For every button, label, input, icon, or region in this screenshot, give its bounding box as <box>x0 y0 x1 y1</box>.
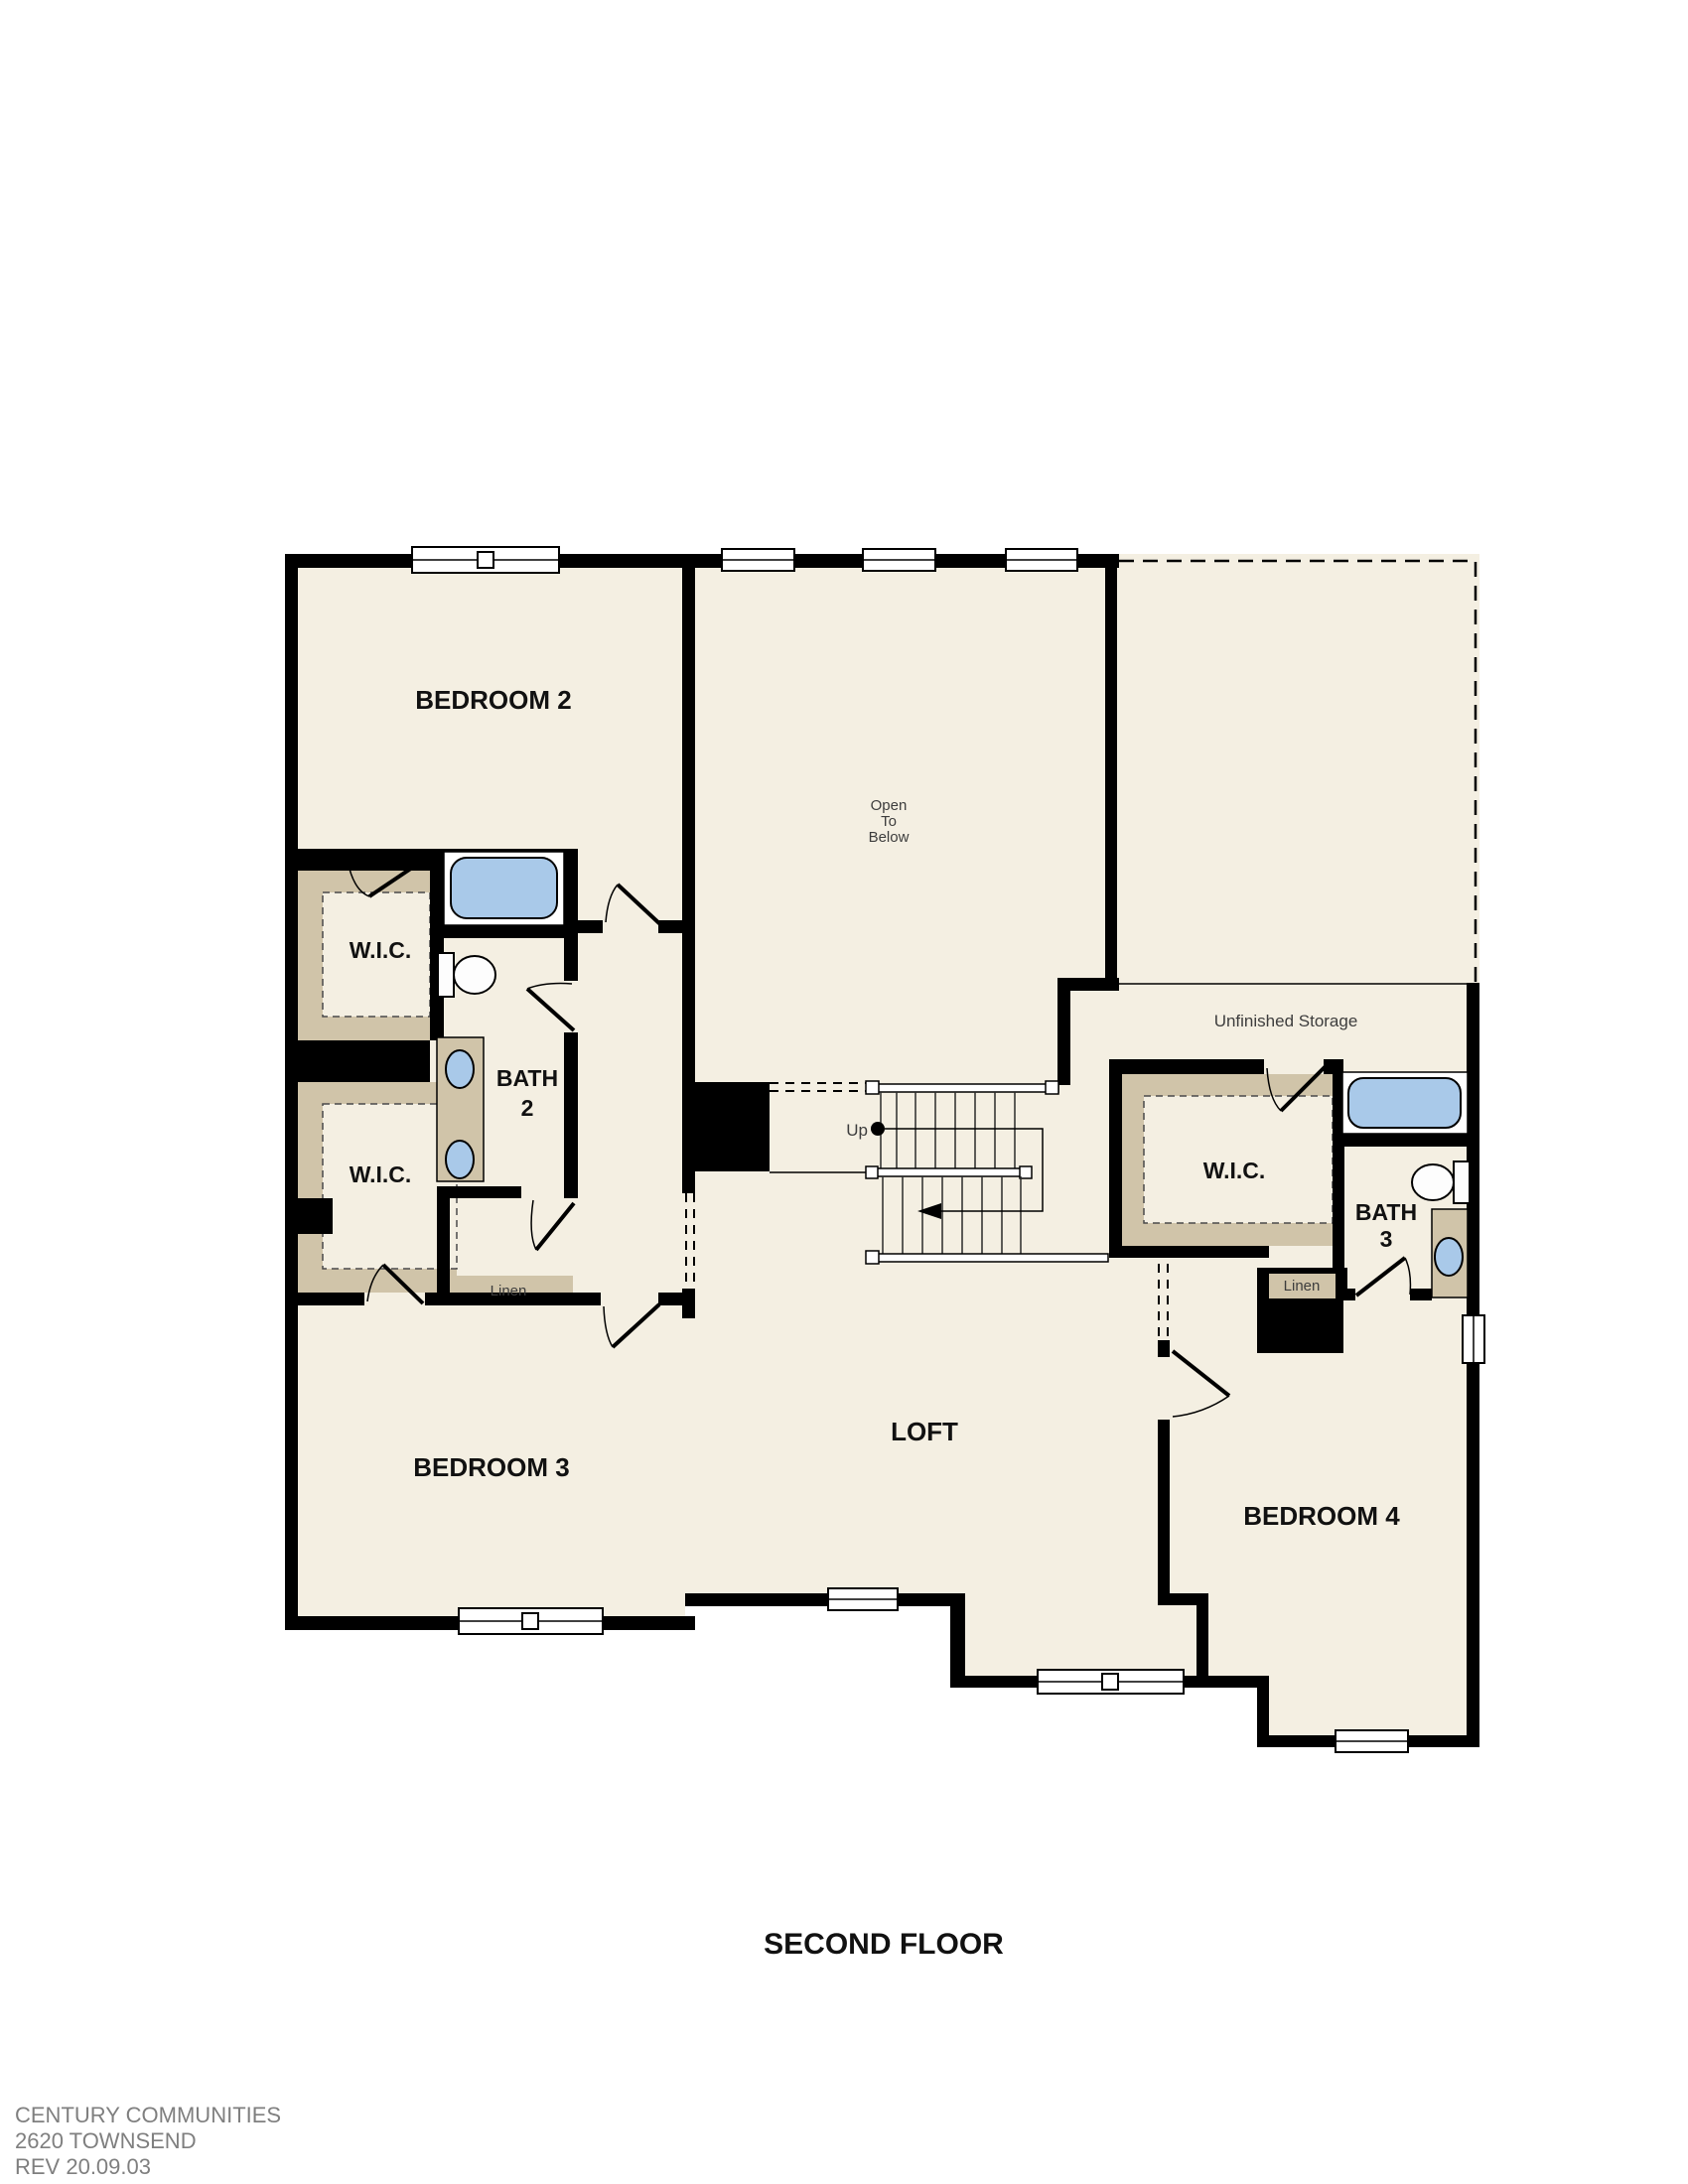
window-openbelow-3 <box>1006 549 1077 571</box>
footer-line2: 2620 TOWNSEND <box>15 2128 197 2153</box>
wic-right-label: W.I.C. <box>1203 1158 1266 1183</box>
stair-rail-middle <box>870 1168 1028 1176</box>
bathtub2-icon <box>451 858 557 918</box>
bath2-label-line2: 2 <box>521 1095 534 1121</box>
stair-up-dot <box>871 1122 885 1136</box>
loft-label: LOFT <box>891 1417 958 1446</box>
bedroom2-label: BEDROOM 2 <box>415 685 571 715</box>
open-to-below-line2: To <box>881 813 897 830</box>
bath3-label-line2: 3 <box>1380 1226 1393 1252</box>
window-loft-bottom <box>828 1588 898 1610</box>
stair-rail-top <box>870 1084 1058 1092</box>
window-openbelow-2 <box>863 549 935 571</box>
linen-left-label: Linen <box>491 1283 527 1299</box>
floor-plan: BEDROOM 2 Open To Below Unfinished Stora… <box>0 0 1688 2184</box>
toilet2-icon <box>438 953 495 997</box>
open-to-below-line1: Open <box>871 797 908 814</box>
toilet3-icon <box>1412 1161 1470 1203</box>
bath2-label-line1: BATH <box>496 1065 558 1091</box>
window-bedroom4-right <box>1463 1315 1484 1363</box>
bedroom4-label: BEDROOM 4 <box>1243 1501 1400 1531</box>
wic-upper-label: W.I.C. <box>350 937 412 963</box>
open-to-below-line3: Below <box>869 829 910 846</box>
window-openbelow-1 <box>722 549 794 571</box>
window-loft-lower <box>1038 1670 1184 1694</box>
wic-lower-label: W.I.C. <box>350 1161 412 1187</box>
footer-line1: CENTURY COMMUNITIES <box>15 2103 281 2127</box>
bath3-label-line1: BATH <box>1355 1199 1417 1225</box>
sink3-icon <box>1435 1238 1463 1276</box>
sink2b-icon <box>446 1141 474 1178</box>
stair-rail-bottom <box>870 1254 1108 1262</box>
linen-right-label: Linen <box>1284 1278 1321 1295</box>
window-bedroom4-bottom <box>1336 1730 1408 1752</box>
bathtub3-icon <box>1348 1078 1461 1128</box>
unfinished-storage-label: Unfinished Storage <box>1214 1012 1358 1030</box>
footer-line3: REV 20.09.03 <box>15 2154 151 2179</box>
sink2a-icon <box>446 1050 474 1088</box>
window-bedroom2-top <box>412 547 559 573</box>
stairs-up-label: Up <box>846 1121 868 1140</box>
bedroom3-label: BEDROOM 3 <box>413 1452 569 1482</box>
window-bedroom3-bottom <box>459 1608 603 1634</box>
page-title: SECOND FLOOR <box>764 1928 1004 1961</box>
